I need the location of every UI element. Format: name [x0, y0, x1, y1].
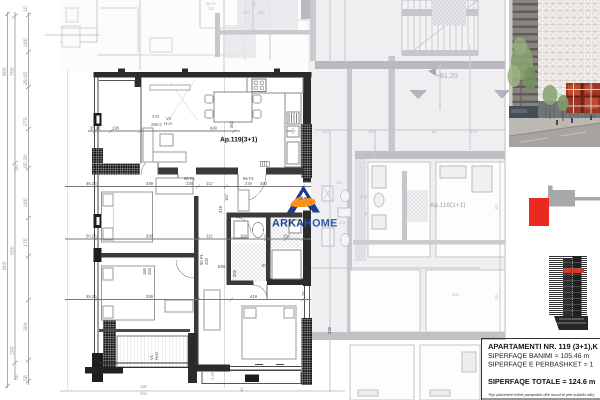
svg-text:240: 240 [258, 10, 265, 15]
svg-text:329: 329 [327, 326, 332, 334]
svg-text:600: 600 [10, 246, 16, 255]
svg-text:H=0: H=0 [164, 121, 172, 126]
svg-text:E06: E06 [262, 263, 270, 268]
svg-text:800: 800 [2, 67, 8, 76]
svg-text:10: 10 [23, 6, 29, 12]
svg-text:H=0: H=0 [154, 352, 159, 360]
svg-text:96 P1: 96 P1 [206, 2, 216, 6]
svg-text:65.28: 65.28 [23, 155, 29, 168]
svg-text:SIPERFAQE TOTALE = 124.6 m: SIPERFAQE TOTALE = 124.6 m [488, 377, 596, 386]
svg-text:95: 95 [252, 2, 256, 6]
svg-text:*Kjo planimetri eshte paraprak: *Kjo planimetri eshte paraprake dhe mund… [488, 392, 595, 397]
svg-text:APARTAMENTI NR. 119 (3+1),K: APARTAMENTI NR. 119 (3+1),K [488, 342, 599, 351]
svg-text:364: 364 [23, 322, 29, 331]
svg-text:157: 157 [224, 193, 229, 201]
svg-text:339: 339 [146, 234, 154, 239]
svg-text:419: 419 [250, 294, 258, 299]
svg-text:28.65: 28.65 [23, 72, 29, 85]
svg-text:290: 290 [495, 294, 499, 300]
svg-text:65: 65 [432, 129, 437, 134]
svg-text:200: 200 [10, 346, 16, 355]
svg-text:135: 135 [112, 126, 120, 131]
svg-text:112: 112 [206, 181, 213, 186]
svg-text:260: 260 [147, 267, 152, 275]
svg-text:220: 220 [186, 181, 194, 186]
svg-text:180: 180 [140, 384, 148, 389]
svg-text:20: 20 [264, 234, 269, 239]
svg-text:40: 40 [239, 387, 244, 392]
svg-text:303: 303 [495, 204, 499, 210]
svg-text:150: 150 [240, 234, 248, 239]
svg-text:303: 303 [452, 292, 459, 297]
svg-text:40: 40 [364, 211, 369, 216]
svg-text:176: 176 [23, 238, 29, 247]
svg-text:Ap.119(3+1): Ap.119(3+1) [220, 137, 257, 144]
svg-text:113: 113 [339, 221, 345, 225]
svg-text:362: 362 [229, 120, 234, 128]
svg-text:110: 110 [336, 181, 342, 185]
svg-text:50: 50 [14, 374, 20, 380]
svg-text:339: 339 [146, 181, 154, 186]
svg-text:270: 270 [23, 117, 29, 126]
svg-text:Ap.118(1+1): Ap.118(1+1) [430, 202, 465, 209]
svg-text:160: 160 [368, 129, 375, 134]
svg-text:3.50: 3.50 [210, 371, 215, 380]
svg-text:25: 25 [301, 291, 306, 296]
svg-text:150: 150 [283, 234, 291, 239]
svg-text:160: 160 [322, 129, 329, 134]
svg-text:630: 630 [210, 126, 218, 131]
svg-text:220: 220 [245, 181, 253, 186]
svg-text:180: 180 [23, 38, 29, 47]
svg-text:ARKA: ARKA [272, 218, 304, 230]
svg-text:750: 750 [10, 67, 16, 76]
svg-text:35.20: 35.20 [86, 181, 97, 186]
svg-text:35.10: 35.10 [90, 126, 101, 131]
svg-text:112: 112 [206, 234, 213, 239]
svg-text:SIPERFAQE BANIMI = 105.46 m: SIPERFAQE BANIMI = 105.46 m [488, 353, 590, 360]
svg-text:800: 800 [2, 261, 8, 270]
svg-text:35.20: 35.20 [86, 294, 97, 299]
svg-text:58: 58 [23, 375, 29, 381]
svg-text:E06: E06 [218, 264, 226, 269]
svg-text:220: 220 [208, 7, 214, 11]
svg-text:270: 270 [243, 10, 250, 15]
svg-text:HOME: HOME [304, 218, 338, 230]
svg-text:270: 270 [152, 114, 160, 119]
svg-text:260-2: 260-2 [151, 122, 162, 127]
svg-text:303: 303 [360, 194, 367, 199]
svg-text:270: 270 [470, 129, 477, 134]
svg-text:319: 319 [218, 205, 223, 213]
svg-text:205: 205 [232, 269, 237, 277]
svg-text:260: 260 [140, 391, 148, 396]
svg-text:50: 50 [14, 165, 20, 171]
svg-text:50.20: 50.20 [86, 234, 97, 239]
svg-text:+61.20: +61.20 [436, 73, 458, 80]
svg-text:220: 220 [204, 257, 209, 265]
svg-text:332: 332 [260, 181, 268, 186]
svg-text:180: 180 [23, 198, 29, 207]
svg-text:SIPERFAQE E PERBASHKET = 1: SIPERFAQE E PERBASHKET = 1 [488, 362, 594, 369]
svg-text:339: 339 [146, 294, 154, 299]
